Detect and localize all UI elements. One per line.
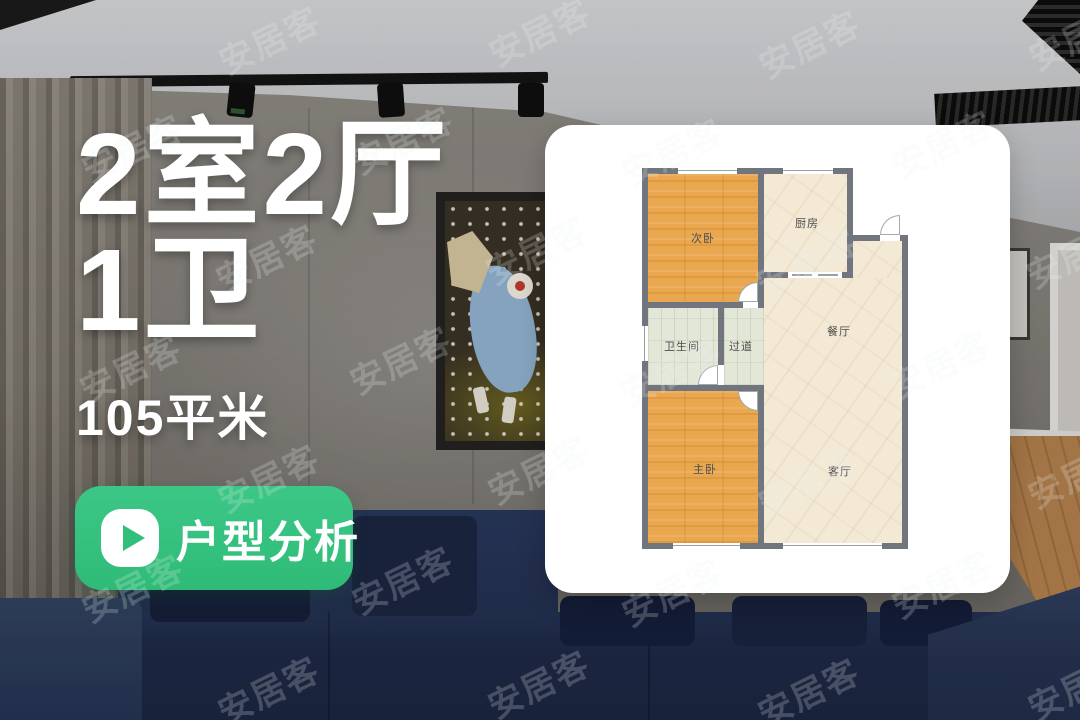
- cta-label: 户型分析: [176, 506, 360, 570]
- slide-door-mark: [792, 274, 812, 276]
- daisy-flower: [507, 273, 533, 299]
- wall: [847, 168, 853, 278]
- label-bathroom: 卫生间: [664, 338, 700, 354]
- floorplan-analysis-button[interactable]: 户型分析: [75, 486, 353, 590]
- label-secondary-bedroom: 次卧: [691, 230, 715, 246]
- area-text: 105平米: [76, 378, 449, 450]
- label-hallway: 过道: [729, 338, 753, 354]
- wall: [758, 174, 764, 308]
- headline-line1: 2室2厅: [76, 116, 449, 232]
- window: [783, 543, 882, 549]
- wall: [902, 235, 908, 549]
- wall: [900, 235, 908, 241]
- horse-leg: [501, 396, 517, 423]
- label-dining-room: 餐厅: [827, 323, 851, 339]
- sofa-seat: [0, 612, 1030, 720]
- listing-cover: 2室2厅 1卫 105平米 户型分析: [0, 0, 1080, 720]
- floorplan: 次卧 厨房 卫生间 过道 餐厅 主卧 客厅: [642, 168, 908, 549]
- entry-door-arc: [880, 215, 900, 235]
- wall: [764, 272, 788, 278]
- horse-leg: [472, 386, 489, 414]
- window: [783, 168, 833, 174]
- window: [642, 326, 648, 361]
- floorplan-card: 次卧 厨房 卫生间 过道 餐厅 主卧 客厅: [545, 125, 1010, 593]
- painting-canvas: [445, 201, 549, 441]
- window: [678, 168, 737, 174]
- listing-headline: 2室2厅 1卫 105平米: [76, 116, 449, 450]
- label-master-bedroom: 主卧: [693, 461, 717, 477]
- wall-artwork: [436, 192, 558, 450]
- sofa-pillow: [352, 516, 477, 616]
- label-living-room: 客厅: [828, 463, 852, 479]
- room-dining-living: [764, 278, 902, 543]
- wall: [758, 385, 764, 543]
- wall: [842, 272, 853, 278]
- room-entry: [853, 241, 902, 278]
- sofa-pillow: [560, 596, 695, 646]
- window: [673, 543, 740, 549]
- sofa-pillow: [732, 596, 867, 646]
- play-icon: [101, 509, 159, 567]
- hall-doorway: [1050, 243, 1080, 443]
- label-kitchen: 厨房: [795, 215, 819, 231]
- sofa-armrest-left: [0, 598, 142, 720]
- headline-line2: 1卫: [76, 232, 449, 348]
- wall: [853, 235, 880, 241]
- spotlight-fixture: [518, 83, 544, 117]
- wall: [718, 308, 724, 365]
- slide-door-mark: [818, 274, 838, 276]
- wall: [642, 302, 743, 308]
